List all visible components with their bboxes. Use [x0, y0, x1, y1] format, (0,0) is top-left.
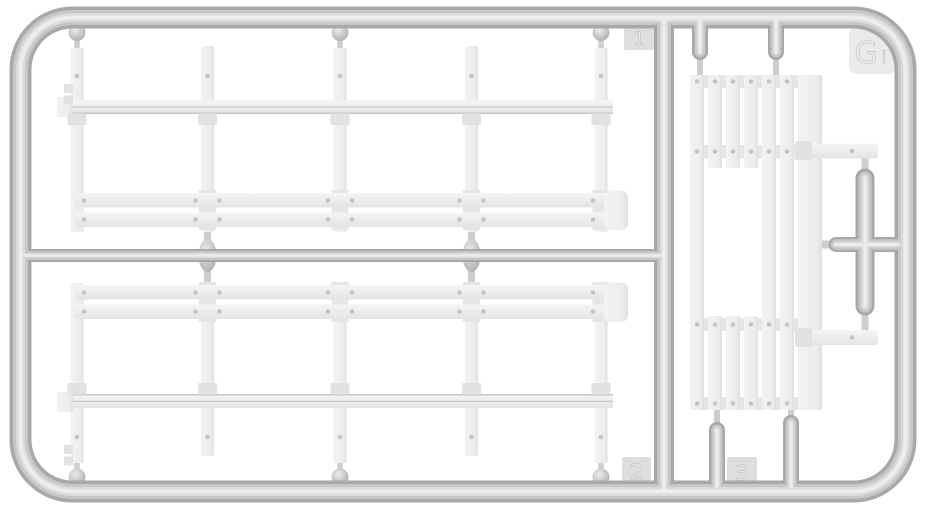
hinge-arm-upper	[810, 144, 878, 159]
rail-end-block	[57, 392, 73, 412]
plank-end-cap	[604, 191, 628, 231]
sprue-render: 1 2 3 Gi	[0, 0, 925, 510]
gate-number-3: 3	[735, 461, 748, 485]
vertical-planks	[690, 75, 822, 410]
gate-number-1: 1	[633, 28, 645, 50]
gate-number-2: 2	[630, 460, 643, 484]
plank-end-cap	[604, 283, 628, 323]
lower-side-panel	[57, 282, 628, 466]
upper-side-panel	[57, 46, 628, 232]
sprue-screenshot: 1 2 3 Gi	[0, 0, 925, 510]
hinge-arm-lower	[810, 330, 878, 345]
